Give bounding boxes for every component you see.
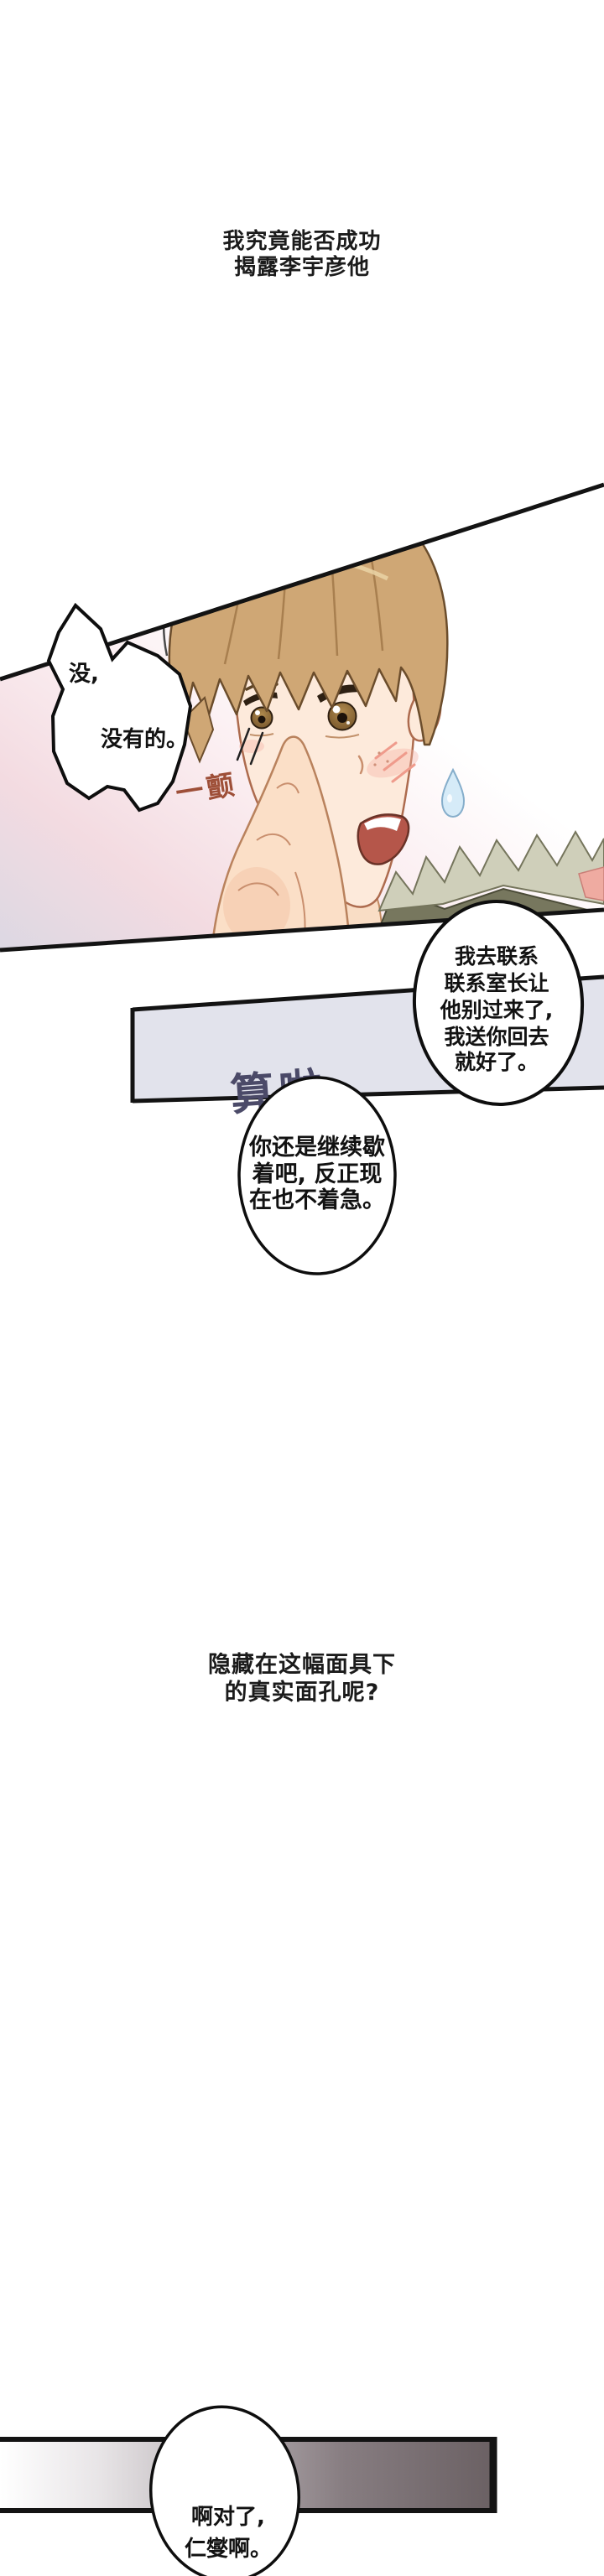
contact-line3: 他别过来了, [440,998,554,1022]
contact-line5: 就好了。 [455,1050,539,1074]
call-line2: 仁燮啊。 [185,2537,272,2562]
contact-line4: 我送你回去 [444,1025,549,1049]
narration-mid-line1: 隐藏在这幅面具下 [0,1651,604,1679]
speech-bubble-call: 啊对了, 仁燮啊。 [141,2398,309,2576]
rest-line3: 在也不着急。 [249,1187,385,1213]
main-panel-art: 没, 没有的。 一颤 我去联系 联系室长让 他别过来了, 我送你回去 就好了。 … [0,470,604,1312]
bottom-panel-art: 啊对了, 仁燮啊。 [0,2390,604,2576]
contact-line1: 我去联系 [455,944,539,969]
stammer-line2: 没有的。 [101,726,188,752]
narration-mid: 隐藏在这幅面具下 的真实面孔呢? [0,1651,604,1706]
rest-line1: 你还是继续歇 [248,1134,385,1161]
manhwa-page: 我究竟能否成功 揭露李宇彦他 [0,0,604,2576]
call-line1: 啊对了, [191,2505,265,2530]
contact-line2: 联系室长让 [444,971,549,995]
narration-top: 我究竟能否成功 揭露李宇彦他 [0,229,604,281]
speech-bubble-rest: 你还是继续歇 着吧, 反正现 在也不着急。 [239,1078,395,1274]
panel1: 没, 没有的。 一颤 [0,485,604,954]
stammer-line1: 没, [69,662,99,687]
narration-top-line1: 我究竟能否成功 [0,229,604,255]
narration-mid-line2: 的真实面孔呢? [0,1679,604,1706]
rest-line2: 着吧, 反正现 [252,1161,383,1187]
narration-top-line2: 揭露李宇彦他 [0,255,604,281]
